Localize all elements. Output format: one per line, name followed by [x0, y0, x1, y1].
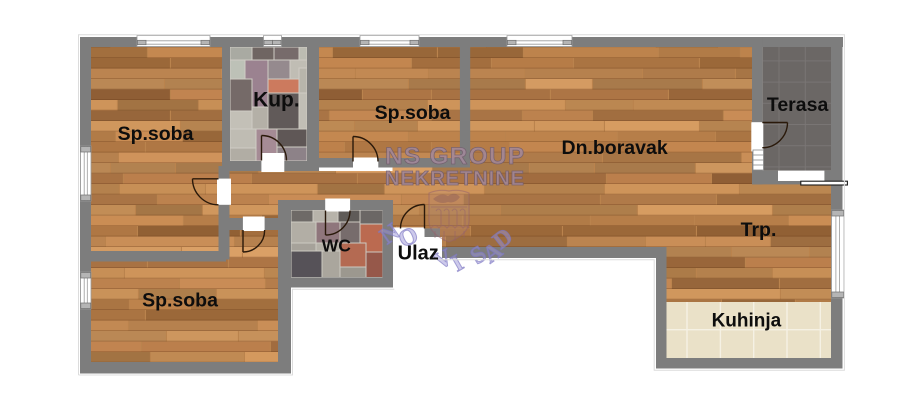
svg-text:Trp.: Trp.	[741, 219, 777, 241]
svg-text:Sp.soba: Sp.soba	[142, 290, 218, 312]
svg-text:Kuhinja: Kuhinja	[712, 310, 782, 331]
svg-text:Sp.soba: Sp.soba	[375, 102, 451, 124]
svg-text:Terasa: Terasa	[767, 94, 829, 116]
svg-text:NS GROUP: NS GROUP	[385, 143, 525, 170]
svg-text:Kup.: Kup.	[253, 89, 300, 112]
svg-text:WC: WC	[322, 236, 352, 256]
svg-text:Dn.boravak: Dn.boravak	[561, 137, 667, 159]
svg-text:Ulaz: Ulaz	[398, 243, 439, 265]
svg-text:NEKRETNINE: NEKRETNINE	[385, 168, 525, 190]
svg-text:Sp.soba: Sp.soba	[118, 123, 194, 145]
